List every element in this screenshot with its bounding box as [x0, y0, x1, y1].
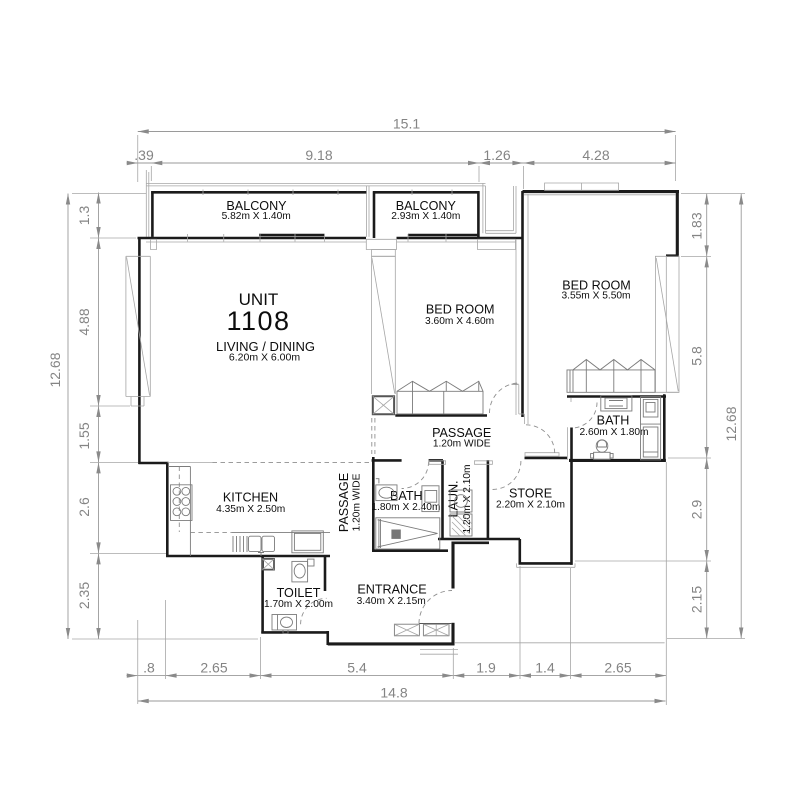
svg-text:2.15: 2.15: [689, 586, 705, 613]
svg-text:2.20m X 2.10m: 2.20m X 2.10m: [496, 500, 565, 511]
svg-text:1.9: 1.9: [476, 659, 496, 675]
svg-text:1.26: 1.26: [483, 147, 510, 163]
svg-text:2.35: 2.35: [76, 582, 92, 609]
svg-text:1.20m WIDE: 1.20m WIDE: [433, 438, 491, 449]
svg-text:1.3: 1.3: [76, 206, 92, 226]
svg-text:BED ROOM: BED ROOM: [426, 302, 495, 316]
svg-text:15.1: 15.1: [393, 116, 420, 132]
svg-text:12.68: 12.68: [723, 406, 739, 441]
svg-text:2.65: 2.65: [604, 659, 631, 675]
svg-text:3.40m X 2.15m: 3.40m X 2.15m: [357, 596, 426, 607]
svg-text:3.60m X 4.60m: 3.60m X 4.60m: [425, 316, 494, 327]
svg-text:5.8: 5.8: [689, 346, 705, 366]
svg-text:1108: 1108: [226, 306, 290, 336]
svg-text:1.4: 1.4: [535, 659, 555, 675]
svg-text:6.20m X 6.00m: 6.20m X 6.00m: [229, 352, 300, 364]
svg-text:ENTRANCE: ENTRANCE: [357, 582, 426, 596]
svg-text:2.93m X 1.40m: 2.93m X 1.40m: [391, 211, 460, 222]
svg-text:2.6: 2.6: [76, 497, 92, 517]
svg-text:2.60m X 1.80m: 2.60m X 1.80m: [579, 427, 648, 438]
svg-text:2.65: 2.65: [200, 659, 227, 675]
svg-text:4.35m X 2.50m: 4.35m X 2.50m: [216, 504, 285, 515]
svg-text:TOILET: TOILET: [277, 586, 321, 600]
svg-text:.39: .39: [134, 147, 154, 163]
svg-text:1.70m X 2.00m: 1.70m X 2.00m: [264, 599, 333, 610]
svg-text:2.9: 2.9: [689, 500, 705, 520]
svg-text:STORE: STORE: [509, 487, 552, 501]
svg-text:.8: .8: [143, 659, 155, 675]
svg-text:4.28: 4.28: [582, 147, 609, 163]
svg-text:1.55: 1.55: [76, 422, 92, 449]
svg-text:5.4: 5.4: [347, 659, 367, 675]
svg-text:3.55m X 5.50m: 3.55m X 5.50m: [561, 291, 630, 302]
svg-text:9.18: 9.18: [305, 147, 332, 163]
svg-text:4.88: 4.88: [76, 308, 92, 335]
svg-text:14.8: 14.8: [380, 685, 407, 701]
svg-text:KITCHEN: KITCHEN: [223, 490, 278, 504]
svg-text:BATH: BATH: [597, 413, 630, 427]
svg-text:PASSAGE: PASSAGE: [337, 473, 351, 532]
svg-text:12.68: 12.68: [47, 352, 63, 387]
svg-text:1.20m WIDE: 1.20m WIDE: [352, 473, 363, 531]
svg-text:5.82m X 1.40m: 5.82m X 1.40m: [222, 211, 291, 222]
svg-text:1.83: 1.83: [689, 212, 705, 239]
